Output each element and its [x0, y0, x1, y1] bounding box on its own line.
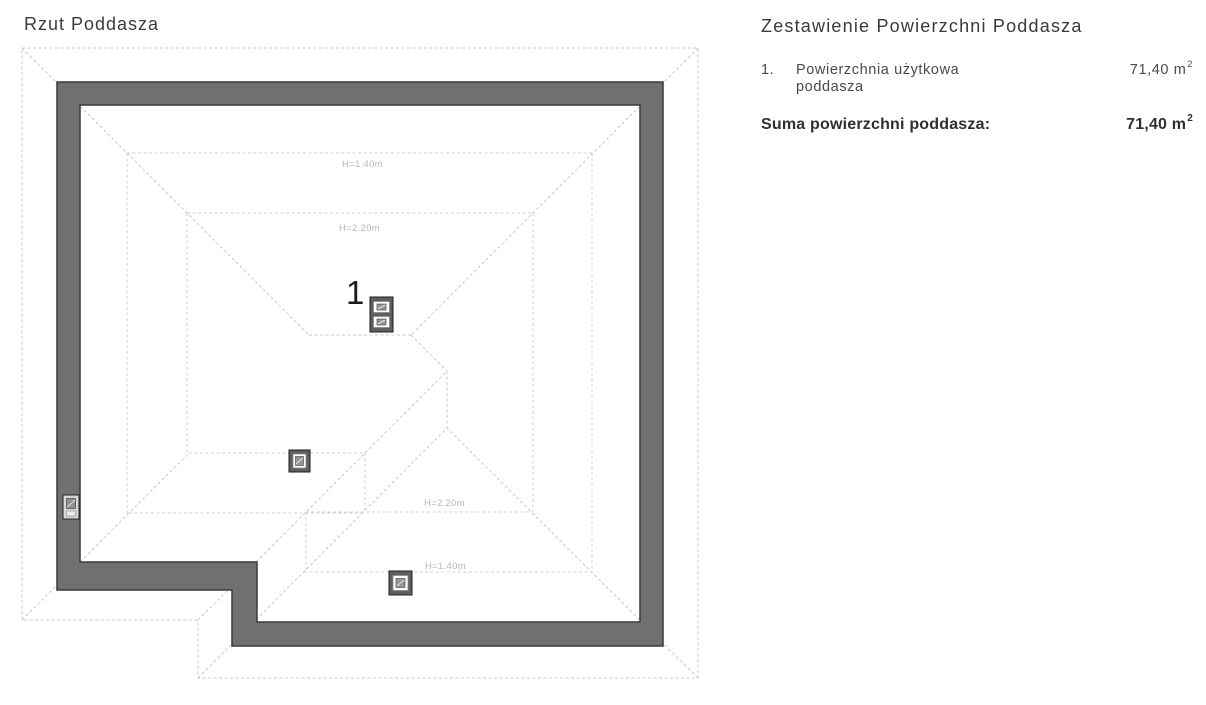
plan-title: Rzut Poddasza	[24, 14, 159, 35]
height-contour-220	[187, 213, 533, 572]
page: H=1.40m H=2.20m H=2.20m H=1.40m 1	[0, 0, 1206, 705]
row-label: Powierzchnia użytkowa poddasza	[796, 62, 1130, 95]
row-value-superscript: 2	[1187, 59, 1193, 69]
chimney-single-bottom-icon	[389, 571, 412, 595]
attic-floor-plan-drawing: H=1.40m H=2.20m H=2.20m H=1.40m 1	[0, 0, 720, 705]
row-label-line1: Powierzchnia użytkowa	[796, 62, 959, 78]
row-label-line2: poddasza	[796, 79, 864, 95]
height-label-220-bottom: H=2.20m	[424, 498, 465, 509]
height-label-140-top: H=1.40m	[342, 159, 383, 170]
area-summary-panel: Zestawienie Powierzchni Poddasza 1. Powi…	[761, 16, 1193, 134]
summary-title: Zestawienie Powierzchni Poddasza	[761, 16, 1193, 37]
room-number-label: 1	[346, 274, 364, 311]
row-index: 1.	[761, 62, 796, 78]
total-value-superscript: 2	[1187, 113, 1193, 124]
roof-ridge-lines	[309, 335, 447, 428]
total-value: 71,40 m2	[1126, 116, 1193, 134]
summary-row: 1. Powierzchnia użytkowa poddasza 71,40 …	[761, 62, 1193, 95]
height-label-140-bottom: H=1.40m	[425, 561, 466, 572]
chimney-single-icon	[289, 450, 310, 472]
height-contour-140	[127, 153, 592, 572]
wall-vent-icon	[63, 495, 79, 519]
height-label-220-top: H=2.20m	[339, 223, 380, 234]
total-label: Suma powierzchni poddasza:	[761, 116, 1126, 134]
row-value: 71,40 m2	[1130, 62, 1193, 78]
summary-total-row: Suma powierzchni poddasza: 71,40 m2	[761, 116, 1193, 134]
chimney-double-icon	[370, 297, 393, 332]
